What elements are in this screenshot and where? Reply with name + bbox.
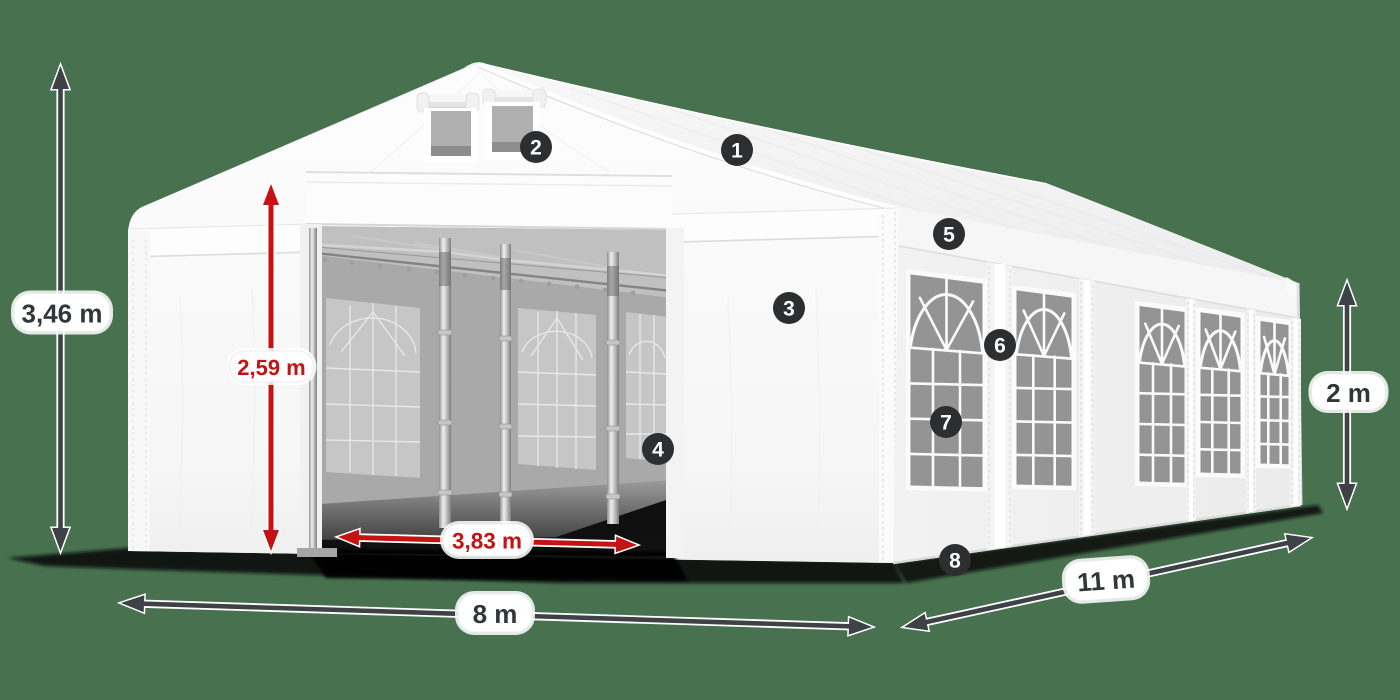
svg-text:3,83 m: 3,83 m <box>452 529 522 554</box>
svg-text:3: 3 <box>783 298 795 321</box>
svg-text:6: 6 <box>994 335 1006 358</box>
svg-text:1: 1 <box>731 140 743 163</box>
svg-text:2: 2 <box>530 137 542 160</box>
svg-text:8 m: 8 m <box>473 599 518 629</box>
svg-text:2,59 m: 2,59 m <box>237 355 306 380</box>
svg-text:7: 7 <box>940 412 952 435</box>
svg-text:8: 8 <box>949 550 961 573</box>
svg-text:2 m: 2 m <box>1326 378 1371 408</box>
svg-text:11 m: 11 m <box>1076 564 1136 598</box>
svg-text:5: 5 <box>943 224 955 247</box>
svg-text:4: 4 <box>652 439 664 462</box>
svg-text:3,46 m: 3,46 m <box>22 299 103 329</box>
